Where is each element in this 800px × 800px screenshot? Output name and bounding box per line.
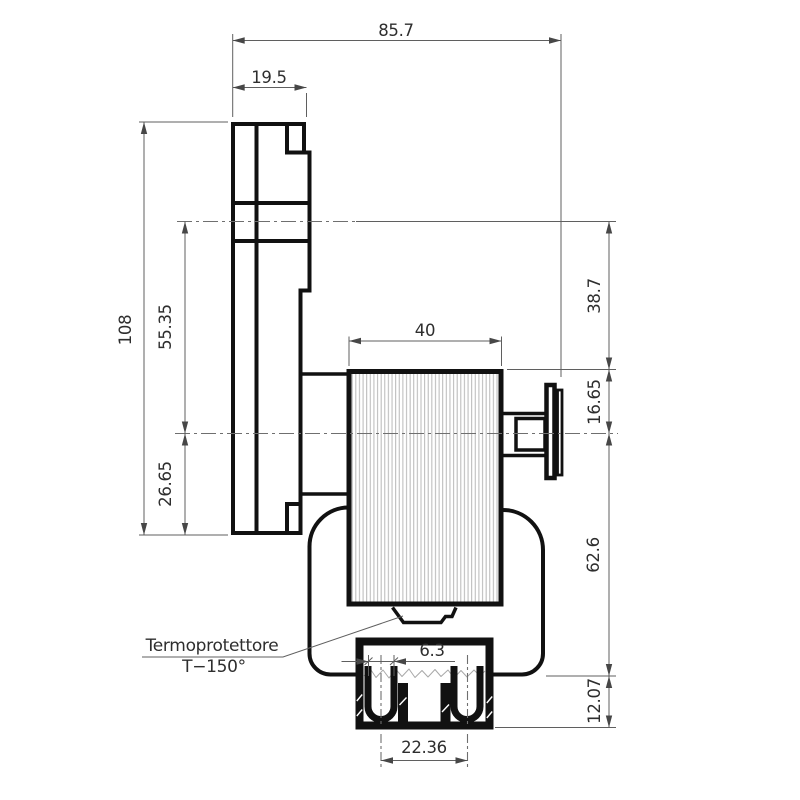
dim-output-axis-to-motor-top-text: 38.7: [585, 278, 604, 314]
dim-plate-thickness-text: 19.5: [251, 68, 287, 87]
dim-motor-top-to-axis-text: 16.65: [585, 379, 604, 425]
dim-terminal-spacing-text: 22.36: [401, 738, 447, 757]
dim-plate-thickness: 19.5: [233, 68, 307, 117]
gearbox-plate: [231, 124, 311, 533]
thermal-protector: [393, 608, 457, 623]
shaft-boss: [516, 419, 545, 451]
motor-lamination-stack: [349, 372, 501, 605]
drawing-page: Termoprotettore T−150° 85.7 19.5: [0, 0, 800, 800]
rear-shaft-disc: [503, 385, 562, 478]
dim-motor-length-text: 40: [415, 321, 435, 340]
disc-rear: [558, 390, 563, 475]
dim-axis-to-axis: 55.35: [156, 222, 188, 434]
dim-housing-to-connector-bottom-text: 12.07: [585, 678, 604, 724]
dim-plate-height-text: 108: [116, 315, 135, 346]
plate-outline: [233, 124, 310, 533]
dim-overall-depth-text: 85.7: [378, 21, 414, 40]
callout-text-line1: Termoprotettore: [145, 636, 279, 656]
dim-axis-to-plate-bottom: 26.65: [156, 434, 188, 536]
dim-housing-to-connector-bottom: 12.07: [495, 676, 616, 728]
dim-axis-to-housing-bottom-text: 62.6: [584, 537, 603, 573]
dim-motor-length: 40: [349, 321, 502, 366]
motor-stator: [349, 372, 501, 605]
dim-axis-to-axis-text: 55.35: [156, 304, 175, 350]
technical-drawing-canvas: Termoprotettore T−150° 85.7 19.5: [0, 0, 800, 800]
dim-terminal-width-text: 6.3: [419, 641, 444, 660]
callout-text-line2: T−150°: [181, 657, 246, 677]
dim-axis-to-plate-bottom-text: 26.65: [156, 461, 175, 507]
disc-front: [547, 385, 555, 478]
dim-motor-top-to-axis: 16.65: [585, 370, 612, 434]
dim-terminal-spacing: 22.36: [381, 738, 468, 764]
